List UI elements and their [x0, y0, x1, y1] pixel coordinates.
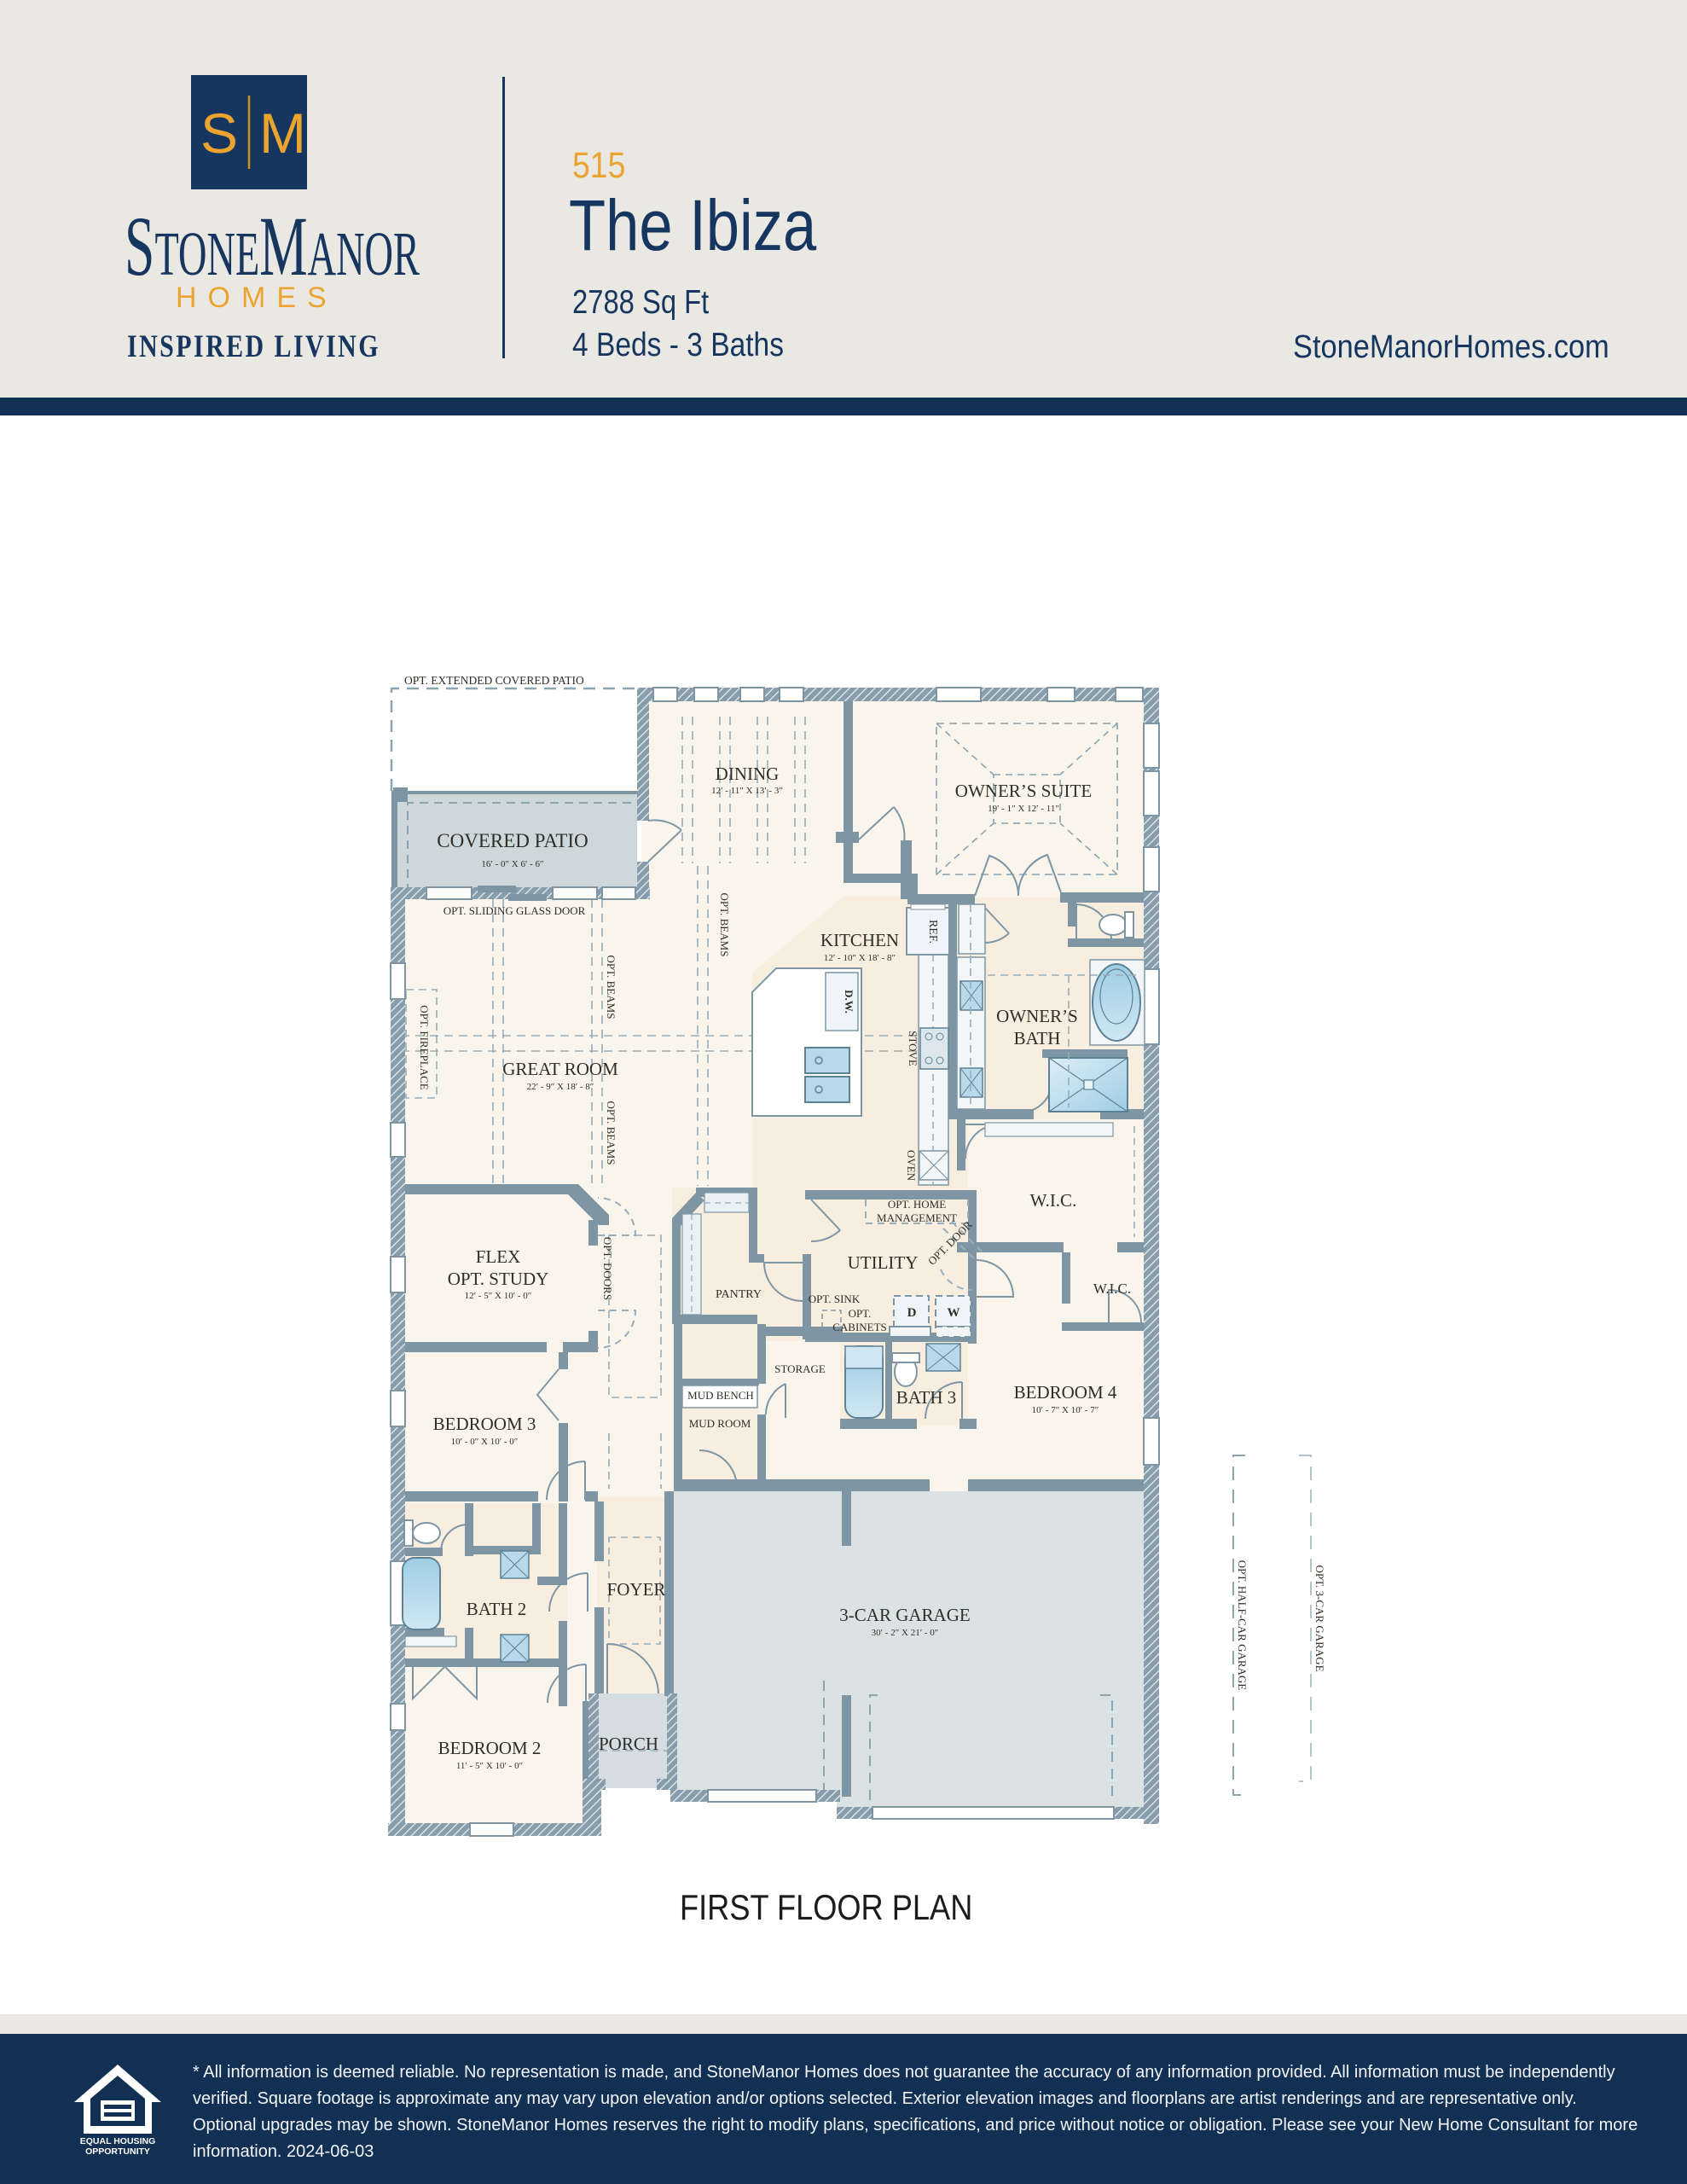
svg-text:12′ - 5″ X 10′ - 0″: 12′ - 5″ X 10′ - 0″ [465, 1291, 532, 1301]
svg-text:D.W.: D.W. [843, 990, 855, 1014]
svg-text:STOVE: STOVE [907, 1031, 919, 1066]
svg-text:GREAT ROOM: GREAT ROOM [502, 1059, 618, 1079]
svg-text:UTILITY: UTILITY [848, 1252, 919, 1273]
svg-text:MANAGEMENT: MANAGEMENT [877, 1211, 957, 1224]
svg-text:HOMES: HOMES [176, 282, 338, 314]
svg-text:22′ - 9″ X 18′ - 8″: 22′ - 9″ X 18′ - 8″ [527, 1082, 594, 1092]
svg-text:3-CAR GARAGE: 3-CAR GARAGE [839, 1605, 970, 1625]
svg-text:OPT. BEAMS: OPT. BEAMS [718, 893, 731, 957]
svg-text:MUD BENCH: MUD BENCH [687, 1389, 754, 1402]
svg-text:OPT. DOORS: OPT. DOORS [601, 1237, 614, 1300]
svg-text:OPT. FIREPLACE: OPT. FIREPLACE [418, 1005, 431, 1089]
svg-text:11′ - 5″ X 10′ - 0″: 11′ - 5″ X 10′ - 0″ [456, 1761, 523, 1771]
svg-text:OPT.: OPT. [849, 1307, 872, 1320]
svg-text:TONE: TONE [155, 221, 260, 289]
svg-text:OPT. EXTENDED COVERED PATIO: OPT. EXTENDED COVERED PATIO [404, 674, 584, 687]
svg-text:OPT. HOME: OPT. HOME [888, 1198, 946, 1211]
svg-text:DINING: DINING [716, 764, 780, 784]
svg-text:OPT. STUDY: OPT. STUDY [448, 1269, 549, 1289]
svg-text:CABINETS: CABINETS [832, 1321, 887, 1333]
svg-text:M: M [259, 102, 306, 165]
svg-text:MUD ROOM: MUD ROOM [689, 1417, 751, 1430]
svg-text:OPT. BEAMS: OPT. BEAMS [605, 1101, 617, 1165]
svg-text:16′ - 0″ X 6′ - 6″: 16′ - 0″ X 6′ - 6″ [481, 859, 543, 869]
svg-text:ANOR: ANOR [308, 221, 420, 289]
svg-text:KITCHEN: KITCHEN [820, 930, 899, 950]
svg-text:19′ - 1″ X 12′ - 11″: 19′ - 1″ X 12′ - 11″ [988, 804, 1059, 814]
svg-text:OWNER’S SUITE: OWNER’S SUITE [955, 781, 1092, 801]
svg-text:BEDROOM 2: BEDROOM 2 [438, 1738, 542, 1758]
svg-text:COVERED PATIO: COVERED PATIO [437, 830, 588, 851]
svg-text:BATH 2: BATH 2 [467, 1599, 527, 1619]
svg-text:FOYER: FOYER [607, 1579, 666, 1600]
svg-text:BEDROOM 4: BEDROOM 4 [1014, 1382, 1117, 1403]
svg-text:BEDROOM 3: BEDROOM 3 [433, 1414, 536, 1434]
svg-text:S: S [200, 102, 238, 165]
svg-text:D: D [907, 1306, 917, 1320]
svg-text:BATH 3: BATH 3 [896, 1387, 957, 1408]
svg-text:12′ - 10″ X 18′ - 8″: 12′ - 10″ X 18′ - 8″ [824, 953, 896, 963]
svg-text:OPT. BEAMS: OPT. BEAMS [605, 955, 617, 1019]
svg-text:OPT. SLIDING GLASS DOOR: OPT. SLIDING GLASS DOOR [443, 904, 586, 917]
svg-text:OPPORTUNITY: OPPORTUNITY [85, 2146, 150, 2157]
svg-text:OPT. 3-CAR GARAGE: OPT. 3-CAR GARAGE [1313, 1565, 1326, 1671]
svg-text:OPT. SINK: OPT. SINK [809, 1292, 861, 1305]
svg-text:OWNER’S: OWNER’S [996, 1006, 1078, 1026]
svg-text:REF.: REF. [926, 920, 939, 944]
svg-text:PORCH: PORCH [599, 1734, 658, 1754]
svg-text:30′ - 2″ X 21′ - 0″: 30′ - 2″ X 21′ - 0″ [872, 1628, 939, 1638]
svg-text:OVEN: OVEN [905, 1150, 918, 1182]
svg-text:10′ - 0″ X 10′ - 0″: 10′ - 0″ X 10′ - 0″ [451, 1437, 519, 1447]
svg-text:W.I.C.: W.I.C. [1093, 1281, 1131, 1297]
svg-text:W: W [948, 1306, 960, 1320]
svg-text:OPT. HALF-CAR GARAGE: OPT. HALF-CAR GARAGE [1236, 1560, 1249, 1691]
svg-text:PANTRY: PANTRY [716, 1288, 762, 1301]
svg-text:FLEX: FLEX [476, 1246, 521, 1267]
svg-text:W.I.C.: W.I.C. [1030, 1190, 1077, 1211]
svg-text:INSPIRED LIVING: INSPIRED LIVING [127, 329, 380, 364]
svg-text:S: S [125, 205, 154, 294]
svg-text:STORAGE: STORAGE [774, 1362, 826, 1375]
svg-text:EQUAL HOUSING: EQUAL HOUSING [80, 2136, 155, 2146]
svg-text:12′ - 11″ X 13′ - 3″: 12′ - 11″ X 13′ - 3″ [711, 786, 783, 796]
svg-text:BATH: BATH [1014, 1028, 1061, 1048]
svg-text:M: M [259, 205, 307, 294]
svg-text:10′ - 7″ X 10′ - 7″: 10′ - 7″ X 10′ - 7″ [1032, 1405, 1099, 1415]
